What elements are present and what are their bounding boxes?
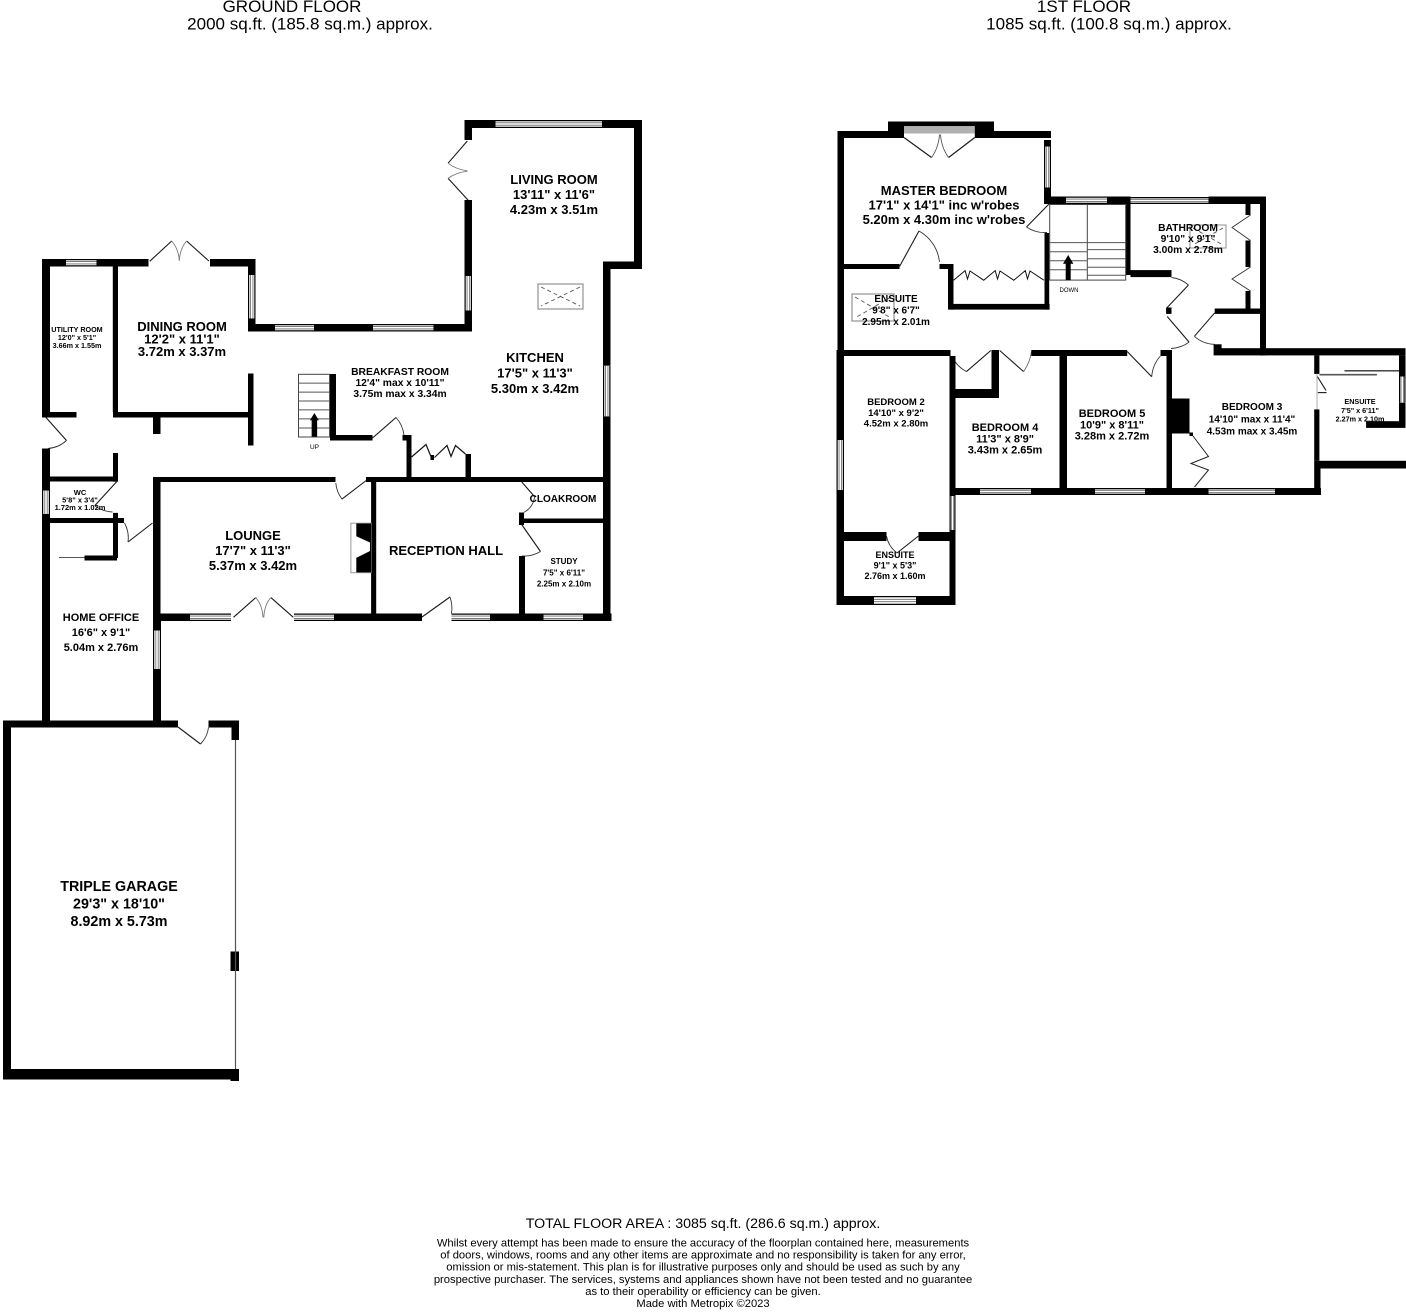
svg-text:BEDROOM 411'3" x 8'9"3.43m x: BEDROOM 411'3" x 8'9"3.43m x 2.65m bbox=[968, 422, 1043, 457]
svg-text:RECEPTION HALL: RECEPTION HALL bbox=[389, 543, 503, 558]
svg-text:UP: UP bbox=[310, 444, 319, 451]
svg-text:DINING ROOM12'2" x 11'1"3.72m: DINING ROOM12'2" x 11'1"3.72m x 3.37m bbox=[137, 319, 227, 359]
svg-text:LIVING ROOM13'11" x 11'6"4.23: LIVING ROOM13'11" x 11'6"4.23m x 3.51m bbox=[510, 172, 598, 217]
svg-text:UTILITY ROOM12'0" x 5'1"3.66m: UTILITY ROOM12'0" x 5'1"3.66m x 1.55m bbox=[51, 325, 102, 350]
svg-text:DOWN: DOWN bbox=[1060, 288, 1079, 294]
svg-text:HOME OFFICE16'6" x 9'1"5.04m: HOME OFFICE16'6" x 9'1"5.04m x 2.76m bbox=[63, 612, 139, 654]
svg-text:2000 sq.ft. (185.8 sq.m.) appr: 2000 sq.ft. (185.8 sq.m.) approx. bbox=[187, 15, 433, 34]
svg-text:BREAKFAST ROOM12'4" max x 10'1: BREAKFAST ROOM12'4" max x 10'11"3.75m ma… bbox=[351, 367, 449, 400]
svg-text:CLOAKROOM: CLOAKROOM bbox=[530, 494, 597, 505]
svg-text:TOTAL FLOOR AREA : 3085 sq.ft.: TOTAL FLOOR AREA : 3085 sq.ft. (286.6 sq… bbox=[526, 1216, 881, 1232]
svg-text:BATHROOM9'10" x 9'1"3.00m x: BATHROOM9'10" x 9'1"3.00m x 2.78m bbox=[1153, 223, 1223, 256]
svg-text:BEDROOM 214'10" x 9'2"4.52m: BEDROOM 214'10" x 9'2"4.52m x 2.80m bbox=[864, 397, 928, 430]
svg-text:1085 sq.ft. (100.8 sq.m.) appr: 1085 sq.ft. (100.8 sq.m.) approx. bbox=[986, 15, 1232, 34]
svg-text:TRIPLE GARAGE29'3" x 18'10"8.: TRIPLE GARAGE29'3" x 18'10"8.92m x 5.73m bbox=[60, 879, 178, 930]
svg-text:BEDROOM 510'9" x 8'11"3.28m: BEDROOM 510'9" x 8'11"3.28m x 2.72m bbox=[1075, 408, 1150, 443]
svg-text:MASTER BEDROOM17'1" x 14'1" i: MASTER BEDROOM17'1" x 14'1" inc w'robes5… bbox=[863, 183, 1026, 227]
